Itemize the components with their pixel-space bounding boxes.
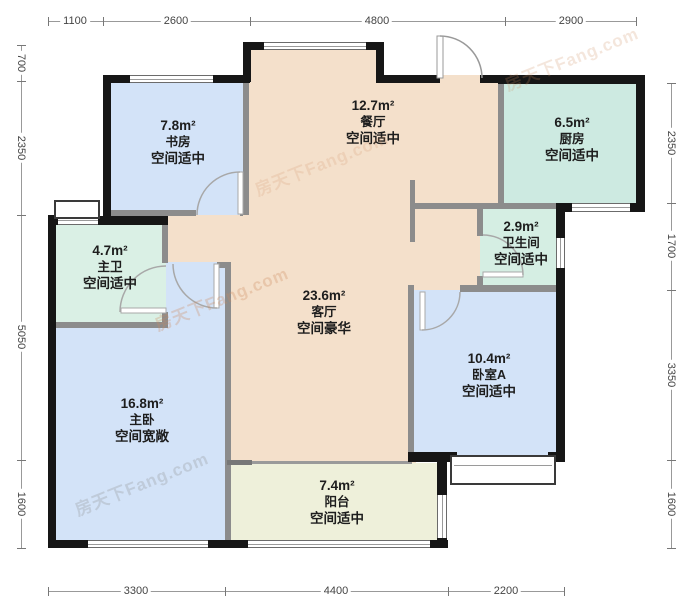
room-area: 23.6m² bbox=[258, 288, 390, 305]
room-area: 12.7m² bbox=[307, 98, 439, 115]
dim-bottom-1: 3300 bbox=[121, 585, 151, 597]
dim-bottom-3: 2200 bbox=[491, 585, 521, 597]
dim-bottom-2: 4400 bbox=[321, 585, 351, 597]
master-bedroom-door bbox=[173, 264, 219, 308]
dim-left-4: 1600 bbox=[15, 489, 27, 519]
dim-top-3: 4800 bbox=[362, 15, 392, 27]
dim-right-4: 1600 bbox=[665, 489, 677, 519]
dim-top-2: 2600 bbox=[161, 15, 191, 27]
room-area: 2.9m² bbox=[455, 219, 587, 236]
room-quality: 空间豪华 bbox=[258, 321, 390, 338]
room-name: 厨房 bbox=[506, 132, 638, 148]
dim-right-1: 2350 bbox=[665, 128, 677, 158]
room-quality: 空间适中 bbox=[455, 252, 587, 269]
bedroom-a-bay-window bbox=[450, 455, 556, 485]
floor-plan: 12.7m² 餐厅 空间适中 7.8m² 书房 空间适中 6.5m² 厨房 空间… bbox=[0, 0, 687, 600]
dim-left-2: 2350 bbox=[15, 133, 27, 163]
room-label-balcony: 7.4m² 阳台 空间适中 bbox=[271, 478, 403, 527]
room-name: 客厅 bbox=[258, 305, 390, 321]
bedroom-a-door bbox=[420, 292, 460, 330]
room-quality: 空间适中 bbox=[307, 131, 439, 148]
room-area: 10.4m² bbox=[423, 351, 555, 368]
room-label-living: 23.6m² 客厅 空间豪华 bbox=[258, 288, 390, 337]
dim-right-3: 3350 bbox=[665, 360, 677, 390]
room-quality: 空间适中 bbox=[506, 148, 638, 165]
room-label-bedroom-a: 10.4m² 卧室A 空间适中 bbox=[423, 351, 555, 400]
entry-door bbox=[437, 36, 482, 78]
room-quality: 空间适中 bbox=[423, 384, 555, 401]
dim-left-3: 5050 bbox=[15, 322, 27, 352]
room-quality: 空间适中 bbox=[44, 276, 176, 293]
room-label-master-bedroom: 16.8m² 主卧 空间宽敞 bbox=[76, 396, 208, 445]
room-quality: 空间适中 bbox=[112, 151, 244, 168]
room-area: 4.7m² bbox=[44, 243, 176, 260]
room-quality: 空间宽敞 bbox=[76, 429, 208, 446]
room-name: 主卫 bbox=[44, 260, 176, 276]
room-name: 卫生间 bbox=[455, 236, 587, 252]
master-bath-bay-window bbox=[54, 200, 100, 219]
room-label-kitchen: 6.5m² 厨房 空间适中 bbox=[506, 115, 638, 164]
room-quality: 空间适中 bbox=[271, 511, 403, 528]
room-label-master-bath: 4.7m² 主卫 空间适中 bbox=[44, 243, 176, 292]
room-area: 16.8m² bbox=[76, 396, 208, 413]
dim-top-1: 1100 bbox=[60, 15, 90, 27]
room-name: 餐厅 bbox=[307, 115, 439, 131]
room-label-study: 7.8m² 书房 空间适中 bbox=[112, 118, 244, 167]
dim-left-1: 700 bbox=[15, 51, 27, 75]
room-label-dining: 12.7m² 餐厅 空间适中 bbox=[307, 98, 439, 147]
study-door bbox=[197, 172, 243, 215]
dim-top-4: 2900 bbox=[556, 15, 586, 27]
room-name: 阳台 bbox=[271, 495, 403, 511]
room-label-bathroom: 2.9m² 卫生间 空间适中 bbox=[455, 219, 587, 268]
room-name: 卧室A bbox=[423, 368, 555, 384]
room-name: 主卧 bbox=[76, 413, 208, 429]
dim-right-2: 1700 bbox=[665, 231, 677, 261]
room-area: 7.8m² bbox=[112, 118, 244, 135]
room-name: 书房 bbox=[112, 135, 244, 151]
room-area: 7.4m² bbox=[271, 478, 403, 495]
room-area: 6.5m² bbox=[506, 115, 638, 132]
